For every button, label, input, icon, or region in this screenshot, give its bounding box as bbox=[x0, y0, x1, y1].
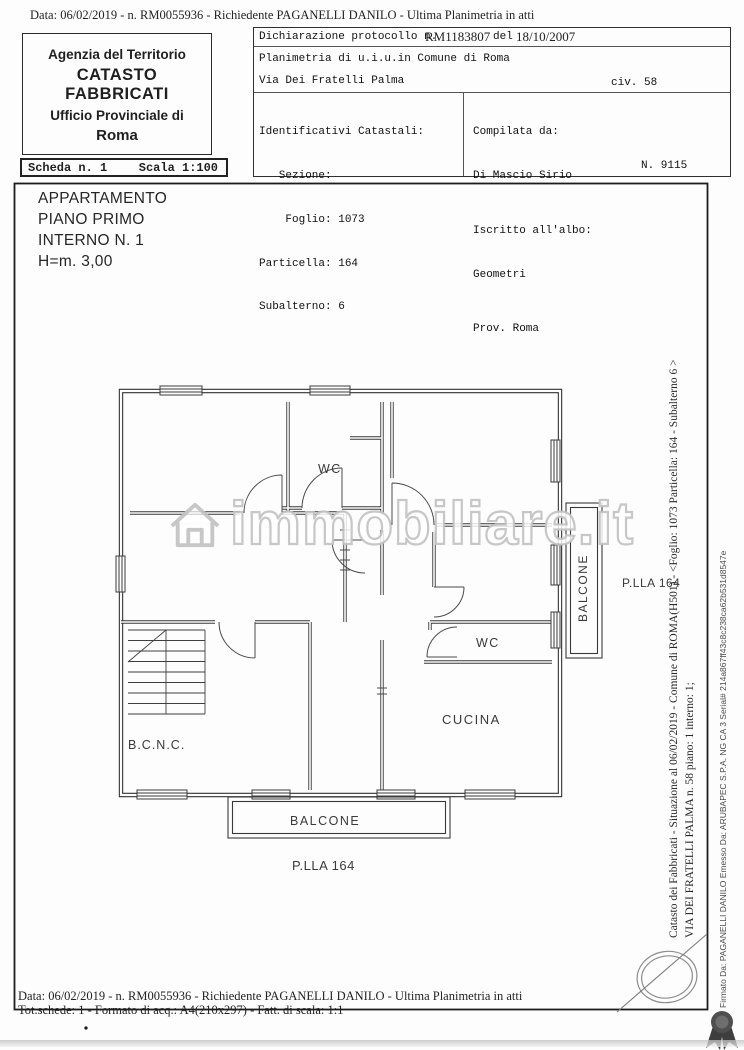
room-label-balcone-bottom: BALCONE bbox=[290, 814, 360, 828]
scan-speck bbox=[84, 1026, 87, 1029]
scanned-cadastral-document: Data: 06/02/2019 - n. RM0055936 - Richie… bbox=[0, 0, 744, 1050]
room-label-bcnc: B.C.N.C. bbox=[128, 738, 185, 752]
parcel-label-right: P.LLA 164 bbox=[622, 576, 680, 590]
margin-address-line: VIA DEI FRATELLI PALMA n. 58 piano: 1 in… bbox=[684, 682, 696, 938]
room-label-cucina: CUCINA bbox=[442, 712, 501, 727]
sheet-frame bbox=[15, 184, 708, 1010]
room-label-wc-2: WC bbox=[476, 636, 500, 650]
staircase bbox=[128, 630, 205, 714]
margin-catasto-line: Catasto dei Fabbricati - Situazione al 0… bbox=[668, 359, 680, 938]
watermark-house-icon bbox=[168, 499, 222, 549]
scan-edge-shadow bbox=[0, 1040, 744, 1047]
interior-walls bbox=[121, 402, 552, 790]
scan-footer-line-1: Data: 06/02/2019 - n. RM0055936 - Richie… bbox=[18, 989, 522, 1004]
room-label-wc-1: WC bbox=[318, 462, 342, 476]
parcel-label-bottom: P.LLA 164 bbox=[292, 858, 355, 873]
signature-stamp bbox=[617, 934, 707, 1012]
room-label-balcone-right: BALCONE bbox=[576, 554, 590, 622]
scan-footer-line-2: Tot.schede: 1 - Formato di acq.: A4(210x… bbox=[18, 1003, 343, 1018]
watermark-text: immobiliare.it bbox=[230, 489, 634, 558]
immobiliare-watermark: immobiliare.it bbox=[168, 489, 634, 558]
outer-walls bbox=[121, 391, 560, 795]
margin-signature-line: Firmato Da: PAGANELLI DANILO Emesso Da: … bbox=[718, 551, 728, 1008]
